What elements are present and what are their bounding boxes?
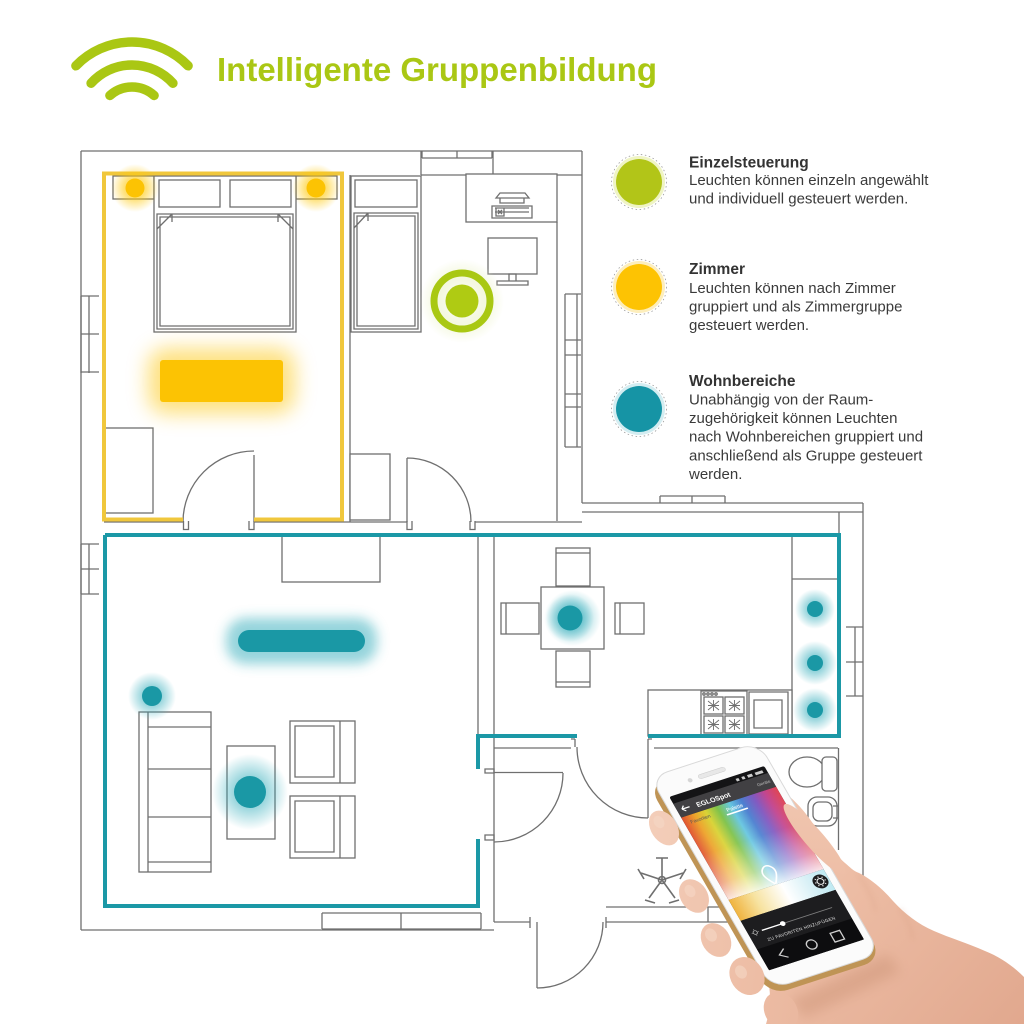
svg-text:Unabhängig von der Raum-zugehö: Unabhängig von der Raum-zugehörigkeit kö… xyxy=(688,392,923,483)
svg-text:Einzelsteuerung: Einzelsteuerung xyxy=(689,155,809,172)
svg-text:Wohnbereiche: Wohnbereiche xyxy=(689,373,796,390)
svg-text:Zimmer: Zimmer xyxy=(689,261,745,278)
svg-text:Leuchten können nach Zimmergru: Leuchten können nach Zimmergruppiert und… xyxy=(689,280,902,334)
svg-text:Leuchten können einzeln angewä: Leuchten können einzeln angewähltund ind… xyxy=(689,172,929,208)
svg-text:Intelligente Gruppenbildung: Intelligente Gruppenbildung xyxy=(217,51,657,88)
